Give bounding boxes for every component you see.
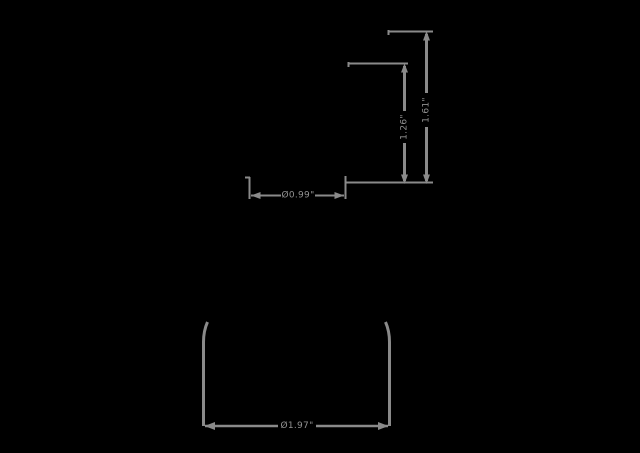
extension-line-right <box>386 322 390 426</box>
arrow-right-icon <box>378 422 389 430</box>
dimension-diagram: 1.61" 1.26" Ø0.99" <box>0 0 640 453</box>
top-view: Ø1.97" <box>204 322 390 434</box>
dimension-base-diameter: Ø1.97" <box>205 418 389 434</box>
arrow-left-icon <box>205 422 216 430</box>
dimension-overall-height: 1.61" <box>420 31 433 184</box>
top-diameter-label: Ø0.99" <box>281 190 314 201</box>
extension-line-left <box>204 322 208 426</box>
extension-line-upper <box>348 62 408 67</box>
dimension-top-diameter: Ø0.99" <box>245 176 346 202</box>
dimension-drawing-svg: 1.61" 1.26" Ø0.99" <box>0 0 640 453</box>
arrow-left-icon <box>251 192 261 199</box>
dimension-upper-height: 1.26" <box>398 64 411 185</box>
overall-height-label: 1.61" <box>422 97 432 123</box>
upper-height-label: 1.26" <box>400 114 410 140</box>
side-view: 1.61" 1.26" Ø0.99" <box>245 30 433 202</box>
arrow-right-icon <box>335 192 345 199</box>
base-diameter-label: Ø1.97" <box>280 420 313 431</box>
arrow-up-icon <box>401 64 408 73</box>
